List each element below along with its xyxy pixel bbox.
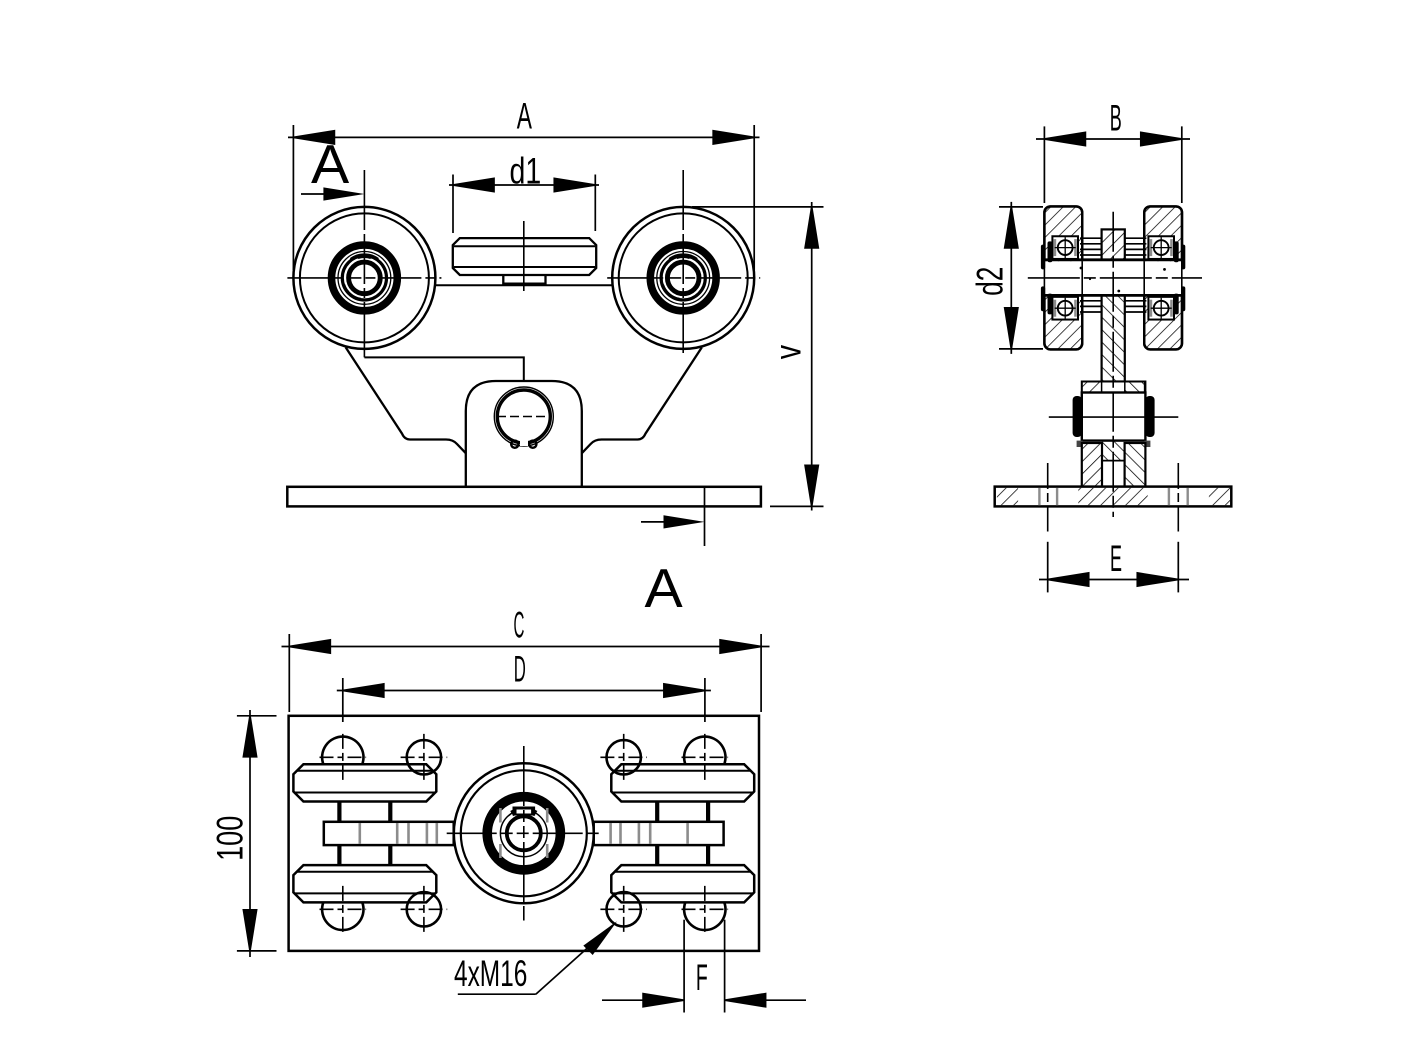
svg-text:F: F (696, 957, 708, 998)
svg-text:A: A (517, 96, 532, 137)
svg-text:d1: d1 (510, 150, 542, 191)
svg-text:B: B (1110, 98, 1122, 139)
svg-text:E: E (1110, 538, 1122, 579)
svg-text:100: 100 (209, 816, 250, 861)
svg-text:v: v (768, 345, 809, 360)
svg-text:A: A (645, 557, 684, 619)
svg-text:D: D (514, 649, 526, 690)
svg-text:4xM16: 4xM16 (454, 953, 527, 994)
svg-text:C: C (514, 605, 525, 646)
svg-text:A: A (311, 133, 350, 195)
svg-text:d2: d2 (969, 267, 1010, 296)
